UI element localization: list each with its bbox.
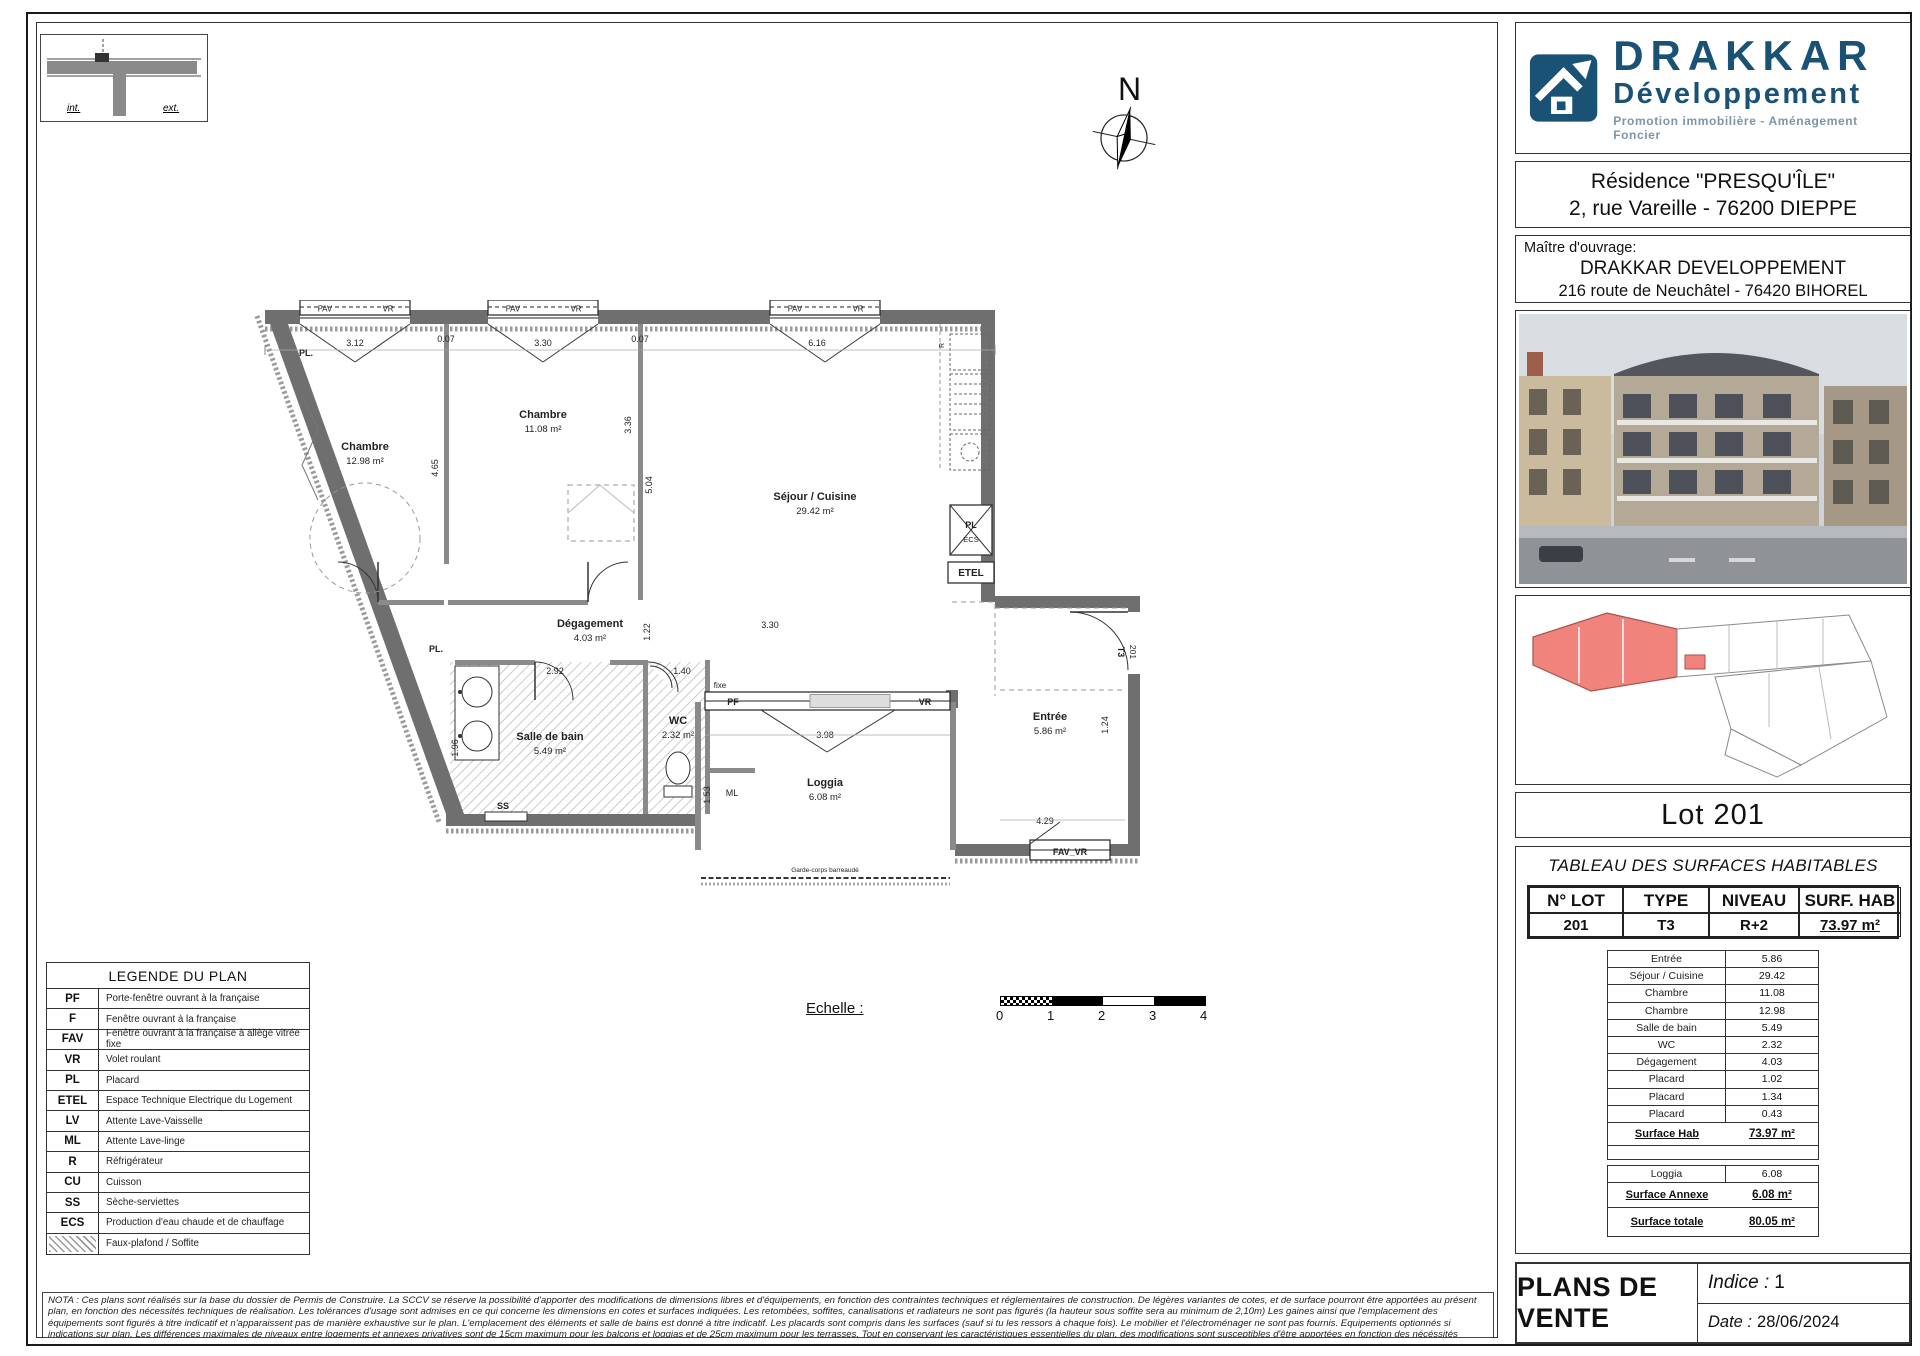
legend-row: F Fenêtre ouvrant à la française: [47, 1009, 309, 1029]
junction-block: [95, 53, 109, 62]
svg-text:1.53: 1.53: [702, 786, 712, 804]
legend-row: VR Volet roulant: [47, 1050, 309, 1070]
legend-code: [47, 1234, 99, 1254]
legend-description: Production d'eau chaude et de chauffage: [99, 1213, 309, 1232]
surface-row: Salle de bain 5.49: [1607, 1019, 1819, 1037]
surfaces-detail-table: Entrée 5.86 Séjour / Cuisine 29.42 Chamb…: [1607, 950, 1819, 1123]
surface-value: 12.98: [1726, 1003, 1818, 1019]
scale-bar: [1000, 996, 1206, 1006]
legend-description: Volet roulant: [99, 1050, 309, 1069]
surface-row: Placard 1.34: [1607, 1088, 1819, 1106]
surface-row: Chambre 12.98: [1607, 1002, 1819, 1020]
document-type: PLANS DE VENTE: [1517, 1264, 1697, 1342]
legend-description: Attente Lave-linge: [99, 1132, 309, 1151]
svg-text:FAV: FAV: [788, 305, 803, 314]
maitre-ouvrage-block: Maître d'ouvrage: DRAKKAR DEVELOPPEMENT …: [1515, 235, 1911, 303]
window-fav-vr-entree: FAV_VR: [1030, 822, 1110, 860]
window-pf-vr: fixe PF VR: [705, 681, 950, 752]
maitre-label: Maître d'ouvrage:: [1524, 240, 1902, 256]
svg-text:11.08 m²: 11.08 m²: [525, 424, 562, 435]
indice-row: Indice :1: [1698, 1264, 1909, 1303]
legend-code: CU: [47, 1173, 99, 1192]
drakkar-logo-icon: [1528, 51, 1599, 125]
lot-surface: 73.97 m²: [1799, 913, 1901, 937]
etel-box: ETEL: [948, 562, 994, 583]
svg-text:3.30: 3.30: [761, 620, 779, 630]
logo-subname: Développement: [1613, 78, 1898, 110]
legend-row: SS Sèche-serviettes: [47, 1193, 309, 1213]
legend-description: Réfrigérateur: [99, 1152, 309, 1171]
lot-niveau: R+2: [1709, 913, 1799, 937]
logo-name: DRAKKAR: [1613, 34, 1898, 78]
logo-tagline: Promotion immobilière - Aménagement Fonc…: [1613, 114, 1898, 142]
surfaces-title: TABLEAU DES SURFACES HABITABLES: [1516, 856, 1910, 876]
svg-text:1.96: 1.96: [450, 739, 460, 757]
surface-room: Placard: [1608, 1089, 1726, 1105]
residence-name: Résidence "PRESQU'ÎLE": [1516, 168, 1910, 195]
scale-tick: 2: [1098, 1008, 1105, 1023]
col-header: N° LOT: [1529, 887, 1623, 913]
insulation-band-left: [257, 316, 439, 822]
north-letter: N: [1118, 72, 1141, 107]
legend-code: SS: [47, 1193, 99, 1212]
surface-row: Placard 1.02: [1607, 1070, 1819, 1088]
maitre-address: 216 route de Neuchâtel - 76420 BIHOREL: [1524, 282, 1902, 301]
seche-serviettes-tag: SS: [497, 801, 509, 811]
svg-text:0.07: 0.07: [437, 334, 455, 344]
title-block-footer: PLANS DE VENTE Indice :1 Date :28/06/202…: [1515, 1262, 1911, 1344]
scale-tick: 3: [1149, 1008, 1156, 1023]
legend-code: F: [47, 1009, 99, 1028]
surface-annexe-row: Surface Annexe 6.08 m²: [1607, 1182, 1819, 1208]
wardrobe-dashed: [568, 485, 634, 541]
surface-room: Dégagement: [1608, 1054, 1726, 1070]
legend-row: ML Attente Lave-linge: [47, 1132, 309, 1152]
surface-value: 11.08: [1726, 985, 1818, 1001]
surfaces-panel: TABLEAU DES SURFACES HABITABLES N° LOT T…: [1515, 846, 1911, 1254]
legend-title: LEGENDE DU PLAN: [47, 963, 309, 989]
floor-plan: Garde-corps barreaudé: [250, 300, 1150, 900]
legend-code: PL: [47, 1071, 99, 1090]
legend-description: Espace Technique Electrique du Logement: [99, 1091, 309, 1110]
surface-row: Entrée 5.86: [1607, 950, 1819, 968]
ext-label: ext.: [163, 103, 179, 114]
surface-row: Dégagement 4.03: [1607, 1053, 1819, 1071]
svg-text:4.03 m²: 4.03 m²: [574, 633, 606, 644]
svg-text:Entrée: Entrée: [1033, 711, 1067, 723]
svg-text:ECS: ECS: [963, 535, 978, 544]
legend-panel: LEGENDE DU PLAN PF Porte-fenêtre ouvrant…: [46, 962, 310, 1255]
surface-room: Entrée: [1608, 951, 1726, 967]
legend-row: LV Attente Lave-Vaisselle: [47, 1111, 309, 1131]
svg-text:FAV_VR: FAV_VR: [1053, 847, 1088, 857]
lot-type: T3: [1623, 913, 1709, 937]
placard-tag-2: PL.: [429, 644, 443, 654]
svg-text:3.12: 3.12: [346, 338, 364, 348]
surface-hab-row: Surface Hab 73.97 m²: [1607, 1122, 1819, 1146]
surface-room: Placard: [1608, 1106, 1726, 1122]
col-header: TYPE: [1623, 887, 1709, 913]
garde-corps-label: Garde-corps barreaudé: [791, 867, 859, 874]
wardrobe-mark: [568, 485, 634, 513]
scale-label: Echelle :: [806, 1000, 864, 1017]
svg-text:FAV: FAV: [318, 305, 333, 314]
surface-row: Chambre 11.08: [1607, 984, 1819, 1002]
svg-text:5.04: 5.04: [644, 476, 654, 494]
col-header: NIVEAU: [1709, 887, 1799, 913]
surface-row: Placard 0.43: [1607, 1105, 1819, 1123]
svg-text:Chambre: Chambre: [341, 441, 389, 453]
svg-text:Dégagement: Dégagement: [557, 618, 623, 630]
lot-title: Lot 201: [1515, 792, 1911, 838]
legend-code: PF: [47, 989, 99, 1008]
legend-row: R Réfrigérateur: [47, 1152, 309, 1172]
residence-block: Résidence "PRESQU'ÎLE" 2, rue Vareille -…: [1515, 161, 1911, 228]
wall-stub: [113, 74, 126, 116]
surface-room: WC: [1608, 1037, 1726, 1053]
legend-row: PF Porte-fenêtre ouvrant à la française: [47, 989, 309, 1009]
surface-row: Séjour / Cuisine 29.42: [1607, 967, 1819, 985]
svg-text:PF: PF: [727, 697, 739, 707]
svg-text:Loggia: Loggia: [807, 777, 844, 789]
scale-segment: [1052, 997, 1103, 1005]
empty-row: [1607, 1145, 1819, 1160]
scale-segment: [1103, 997, 1154, 1005]
svg-text:6.16: 6.16: [808, 338, 826, 348]
svg-text:FAV: FAV: [506, 305, 521, 314]
surface-room: Chambre: [1608, 985, 1726, 1001]
surfaces-main-table: N° LOT TYPE NIVEAU SURF. HAB 201 T3 R+2 …: [1527, 885, 1899, 939]
legend-description: Porte-fenêtre ouvrant à la française: [99, 989, 309, 1008]
legend-description: Attente Lave-Vaisselle: [99, 1111, 309, 1130]
loggia-row: Loggia 6.08: [1607, 1165, 1819, 1183]
placard-ecs: PL ECS: [950, 505, 992, 555]
legend-code: ECS: [47, 1213, 99, 1232]
svg-text:Salle de bain: Salle de bain: [516, 731, 584, 743]
legend-description: Fenêtre ouvrant à la française à allège …: [99, 1030, 309, 1049]
legend-row: ETEL Espace Technique Electrique du Loge…: [47, 1091, 309, 1111]
legend-description: Faux-plafond / Soffite: [99, 1234, 309, 1254]
maitre-name: DRAKKAR DEVELOPPEMENT: [1524, 258, 1902, 280]
scale-tick: 4: [1200, 1008, 1207, 1023]
svg-text:5.86 m²: 5.86 m²: [1034, 726, 1066, 737]
lave-linge-tag: ML: [726, 788, 739, 798]
building-photo: [1515, 310, 1911, 588]
svg-text:VR: VR: [570, 305, 581, 314]
legend-description: Placard: [99, 1071, 309, 1090]
svg-text:6.08 m²: 6.08 m²: [809, 792, 841, 803]
scale-tick: 1: [1047, 1008, 1054, 1023]
scale-segment: [1001, 997, 1052, 1005]
legend-row: CU Cuisson: [47, 1173, 309, 1193]
legend-row: Faux-plafond / Soffite: [47, 1234, 309, 1254]
legend-code: ETEL: [47, 1091, 99, 1110]
svg-text:WC: WC: [669, 715, 687, 727]
svg-text:4.29: 4.29: [1036, 816, 1054, 826]
svg-text:4.65: 4.65: [430, 459, 440, 477]
svg-text:2.32 m²: 2.32 m²: [662, 730, 694, 741]
surface-room: Chambre: [1608, 1003, 1726, 1019]
lot-tag: 201: [1128, 645, 1138, 659]
surface-value: 5.49: [1726, 1020, 1818, 1036]
scale-segment: [1154, 997, 1205, 1005]
svg-text:1.24: 1.24: [1100, 716, 1110, 734]
north-compass-icon: N: [1078, 72, 1170, 176]
surface-value: 4.03: [1726, 1054, 1818, 1070]
logo-block: DRAKKAR Développement Promotion immobili…: [1515, 22, 1911, 154]
legend-row: PL Placard: [47, 1071, 309, 1091]
type-tag: T3: [1116, 647, 1126, 658]
surface-totale-row: Surface totale 80.05 m²: [1607, 1207, 1819, 1237]
legend-description: Fenêtre ouvrant à la française: [99, 1009, 309, 1028]
lot-number: 201: [1529, 913, 1623, 937]
legend-row: FAV Fenêtre ouvrant à la française à all…: [47, 1030, 309, 1050]
svg-text:Chambre: Chambre: [519, 409, 567, 421]
legend-code: LV: [47, 1111, 99, 1130]
placard-tag-1: PL.: [299, 348, 313, 358]
svg-text:ETEL: ETEL: [958, 568, 984, 579]
opening-dashed: [952, 602, 1128, 696]
svg-text:Séjour / Cuisine: Séjour / Cuisine: [773, 491, 856, 503]
legend-code: ML: [47, 1132, 99, 1151]
svg-text:0.07: 0.07: [631, 334, 649, 344]
residence-address: 2, rue Vareille - 76200 DIEPPE: [1516, 195, 1910, 222]
col-header: SURF. HAB: [1799, 887, 1901, 913]
surface-value: 0.43: [1726, 1106, 1818, 1122]
wall-section-detail: int. ext.: [40, 34, 208, 122]
surface-room: Salle de bain: [1608, 1020, 1726, 1036]
svg-text:12.98 m²: 12.98 m²: [346, 456, 384, 467]
surface-value: 29.42: [1726, 968, 1818, 984]
svg-text:2.92: 2.92: [546, 666, 564, 676]
legend-description: Sèche-serviettes: [99, 1193, 309, 1212]
nota-disclaimer: NOTA : Ces plans sont réalisés sur la ba…: [42, 1292, 1494, 1338]
site-key-plan: [1515, 595, 1911, 785]
date-row: Date :28/06/2024: [1698, 1303, 1909, 1343]
legend-code: FAV: [47, 1030, 99, 1049]
surface-value: 1.02: [1726, 1071, 1818, 1087]
ceiling-slab: [47, 61, 197, 74]
surface-value: 5.86: [1726, 951, 1818, 967]
svg-text:VR: VR: [919, 697, 932, 707]
legend-code: R: [47, 1152, 99, 1171]
fridge-label: R: [939, 343, 946, 348]
surface-value: 1.34: [1726, 1089, 1818, 1105]
surface-room: Séjour / Cuisine: [1608, 968, 1726, 984]
surface-row: WC 2.32: [1607, 1036, 1819, 1054]
svg-text:fixe: fixe: [714, 681, 727, 690]
svg-text:3.30: 3.30: [534, 338, 552, 348]
int-label: int.: [67, 103, 80, 114]
svg-text:VR: VR: [852, 305, 863, 314]
surface-room: Placard: [1608, 1071, 1726, 1087]
svg-text:29.42 m²: 29.42 m²: [796, 506, 834, 517]
legend-row: ECS Production d'eau chaude et de chauff…: [47, 1213, 309, 1233]
svg-text:VR: VR: [382, 305, 393, 314]
dimensions-top: 3.12 0.07 3.30 0.07 6.16: [265, 334, 995, 355]
legend-code: VR: [47, 1050, 99, 1069]
scale-tick: 0: [996, 1008, 1003, 1023]
svg-text:1.22: 1.22: [642, 623, 652, 641]
svg-text:3.36: 3.36: [623, 416, 633, 434]
svg-text:1.40: 1.40: [673, 666, 691, 676]
svg-text:PL: PL: [965, 520, 977, 530]
legend-description: Cuisson: [99, 1173, 309, 1192]
surface-value: 2.32: [1726, 1037, 1818, 1053]
svg-text:5.49 m²: 5.49 m²: [534, 746, 566, 757]
legend-rows: PF Porte-fenêtre ouvrant à la française …: [47, 989, 309, 1254]
plan-de-vente-sheet: int. ext. N: [0, 0, 1920, 1356]
